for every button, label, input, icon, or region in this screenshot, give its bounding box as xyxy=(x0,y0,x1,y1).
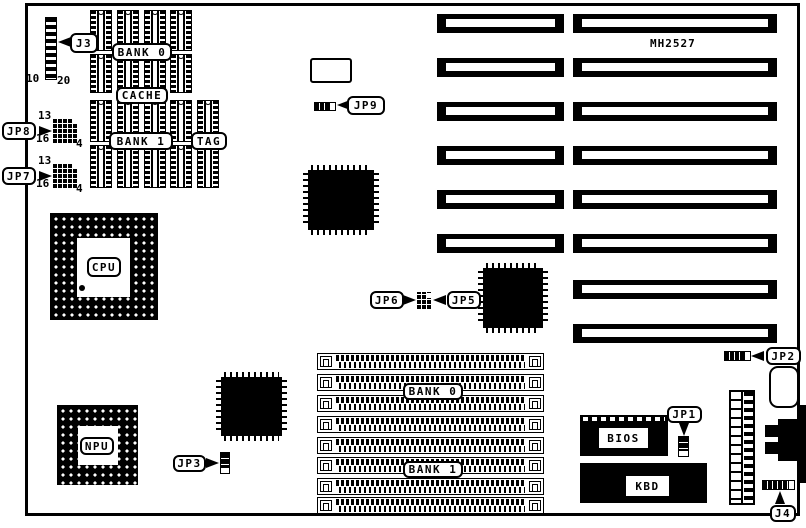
dip-pins-right xyxy=(213,146,218,187)
dip-pins-left xyxy=(198,146,203,187)
simm-clip-right xyxy=(529,419,541,430)
isa-slot-left-6 xyxy=(437,234,564,253)
motherboard-diagram: MH2527 BIOSKBDJ3BANK 0CACHEBANK 1TAGJP8J… xyxy=(0,0,806,528)
power-connector xyxy=(729,390,755,505)
simm-clip-right xyxy=(529,500,541,511)
text-jp8-pin-16: 16 xyxy=(36,133,49,144)
simm-pins-bottom xyxy=(336,506,525,512)
qfp-leads-bottom xyxy=(311,230,371,235)
text-jp7-pin-4: 4 xyxy=(76,183,83,194)
dip-pins-left xyxy=(91,55,96,92)
dip-memory-chip xyxy=(170,100,192,142)
callout-tail-jp6 xyxy=(403,295,416,305)
callout-bank1-cache: BANK 1 xyxy=(109,132,173,150)
dip-body xyxy=(97,146,105,187)
isa-slot-left-4 xyxy=(437,146,564,165)
callout-tag: TAG xyxy=(191,132,227,150)
cpu-pin1-dot xyxy=(79,285,85,291)
keyboard-connector-tab xyxy=(765,442,779,454)
bios-socket-dashes xyxy=(583,417,665,421)
dip-pins-right xyxy=(186,101,191,141)
simm-socket-1 xyxy=(317,353,544,370)
dip-body xyxy=(97,11,105,50)
isa-slot-window xyxy=(582,195,768,203)
simm-pins-bottom xyxy=(336,446,525,452)
edge-connector-stub xyxy=(799,458,806,483)
jp8-open-pin xyxy=(72,119,77,124)
dip-body xyxy=(177,55,185,92)
dip-memory-chip xyxy=(144,145,166,188)
isa-slot-right-1 xyxy=(573,14,777,33)
callout-bank0-cache: BANK 0 xyxy=(112,43,172,61)
qfp-leads-right xyxy=(543,271,548,325)
jp1-jumper-strip xyxy=(678,436,689,457)
dip-pins-left xyxy=(145,146,150,187)
callout-jp1: JP1 xyxy=(667,406,702,423)
callout-jp7: JP7 xyxy=(2,167,36,185)
dip-memory-chip xyxy=(90,145,112,188)
dip-pins-left xyxy=(171,146,176,187)
jp3-jumper-strip xyxy=(220,452,230,474)
jp2-open-pin xyxy=(744,352,750,360)
dip-pins-left xyxy=(91,101,96,141)
text-j3-pin-10: 10 xyxy=(26,73,39,84)
board-title: MH2527 xyxy=(650,38,696,49)
simm-clip-left xyxy=(320,440,332,451)
isa-slot-window xyxy=(582,329,768,337)
dip-body xyxy=(124,146,132,187)
qfp-leads-right xyxy=(374,173,379,227)
dip-body xyxy=(204,146,212,187)
isa-slot-window xyxy=(582,19,768,27)
dip-pins-left xyxy=(171,11,176,50)
j4-open-pin xyxy=(788,481,794,489)
callout-jp9: JP9 xyxy=(347,96,385,115)
edge-connector-stub xyxy=(799,405,806,420)
simm-pins-bottom xyxy=(336,487,525,493)
simm-clip-right xyxy=(529,460,541,471)
callout-cache: CACHE xyxy=(116,87,168,104)
callout-tail-j4 xyxy=(775,491,785,504)
isa-slot-left-3 xyxy=(437,102,564,121)
dip-pins-right xyxy=(186,146,191,187)
isa-slot-right-2 xyxy=(573,58,777,77)
callout-tail-jp1 xyxy=(679,423,689,436)
qfp-leads-right xyxy=(282,380,287,433)
qfp-leads-bottom xyxy=(486,328,540,333)
isa-slot-left-2 xyxy=(437,58,564,77)
text-j3-pin-20: 20 xyxy=(57,75,70,86)
simm-socket-7 xyxy=(317,478,544,495)
isa-slot-right-6 xyxy=(573,234,777,253)
isa-slot-window xyxy=(446,239,555,247)
simm-pins-top xyxy=(336,499,525,505)
simm-pins-top xyxy=(336,480,525,486)
simm-pins-bottom xyxy=(336,362,525,368)
isa-slot-right-4 xyxy=(573,146,777,165)
isa-slot-window xyxy=(446,63,555,71)
isa-slot-window xyxy=(446,19,555,27)
simm-socket-4 xyxy=(317,416,544,433)
dip-pins-right xyxy=(160,146,165,187)
j3-pin-header xyxy=(45,17,57,80)
jp2-jumper-strip xyxy=(724,351,751,361)
callout-j4: J4 xyxy=(770,505,796,522)
isa-slot-window xyxy=(582,63,768,71)
isa-slot-window xyxy=(446,195,555,203)
simm-clip-right xyxy=(529,481,541,492)
chip-label-kbd: KBD xyxy=(626,476,669,496)
qfp-chipset-3 xyxy=(478,263,548,333)
jp1-open-pin xyxy=(679,450,688,456)
dip-pins-left xyxy=(118,146,123,187)
dip-memory-chip xyxy=(170,10,192,51)
power-connector-cells xyxy=(731,392,743,503)
text-jp8-pin-4: 4 xyxy=(76,138,83,149)
jp5-jp6-jumper-block xyxy=(417,292,432,309)
isa-slot-right-7 xyxy=(573,280,777,299)
dip-pins-right xyxy=(133,146,138,187)
simm-pins-top xyxy=(336,439,525,445)
callout-cpu: CPU xyxy=(87,257,121,277)
simm-clip-right xyxy=(529,398,541,409)
isa-slot-left-5 xyxy=(437,190,564,209)
simm-socket-8 xyxy=(317,497,544,514)
dip-pins-right xyxy=(186,55,191,92)
jp3-open-pin xyxy=(221,467,229,473)
jp5-jp6-open-pin xyxy=(426,293,431,298)
jp9-open-pin xyxy=(329,103,335,110)
dip-body xyxy=(177,101,185,141)
dip-body xyxy=(177,146,185,187)
jp8-jumper-block xyxy=(53,118,78,143)
isa-slot-right-3 xyxy=(573,102,777,121)
callout-npu: NPU xyxy=(80,437,114,455)
keyboard-connector xyxy=(778,419,806,461)
callout-jp5: JP5 xyxy=(447,291,481,309)
text-jp8-pin-13: 13 xyxy=(38,110,51,121)
dip-pins-right xyxy=(106,55,111,92)
dip-memory-chip xyxy=(170,54,192,93)
isa-slot-left-1 xyxy=(437,14,564,33)
isa-slot-window xyxy=(446,151,555,159)
simm-pins-bottom xyxy=(336,425,525,431)
isa-slot-window xyxy=(582,107,768,115)
simm-pins-bottom xyxy=(336,404,525,410)
callout-jp8: JP8 xyxy=(2,122,36,140)
chip-label-bios: BIOS xyxy=(599,428,648,448)
dip-body xyxy=(97,55,105,92)
dip-memory-chip xyxy=(197,145,219,188)
simm-clip-left xyxy=(320,500,332,511)
power-connector-pins xyxy=(744,392,753,503)
dip-pins-right xyxy=(106,11,111,50)
keyboard-connector-tab xyxy=(765,425,779,437)
simm-clip-right xyxy=(529,356,541,367)
simm-clip-left xyxy=(320,419,332,430)
simm-clip-left xyxy=(320,377,332,388)
simm-pins-top xyxy=(336,355,525,361)
battery xyxy=(769,366,799,408)
isa-slot-window xyxy=(582,239,768,247)
dip-memory-chip xyxy=(117,145,139,188)
text-jp7-pin-16: 16 xyxy=(36,178,49,189)
dip-body xyxy=(97,101,105,141)
callout-tail-jp3 xyxy=(206,458,219,468)
dip-pins-left xyxy=(91,146,96,187)
simm-clip-right xyxy=(529,440,541,451)
isa-slot-window xyxy=(582,151,768,159)
callout-jp2: JP2 xyxy=(766,347,801,365)
simm-pins-top xyxy=(336,376,525,382)
callout-jp6: JP6 xyxy=(370,291,404,309)
qfp-body xyxy=(308,170,374,230)
simm-pins-top xyxy=(336,418,525,424)
simm-clip-left xyxy=(320,398,332,409)
callout-tail-jp5 xyxy=(433,295,446,305)
jp7-open-pin xyxy=(72,164,77,169)
text-jp7-pin-13: 13 xyxy=(38,155,51,166)
qfp-body xyxy=(483,268,543,328)
callout-j3: J3 xyxy=(70,33,98,53)
isa-slot-right-8 xyxy=(573,324,777,343)
simm-clip-left xyxy=(320,356,332,367)
qfp-chipset-1 xyxy=(303,165,379,235)
qfp-body xyxy=(221,377,282,436)
isa-slot-window xyxy=(446,107,555,115)
simm-clip-left xyxy=(320,481,332,492)
simm-clip-right xyxy=(529,377,541,388)
isa-slot-right-5 xyxy=(573,190,777,209)
qfp-leads-bottom xyxy=(224,436,279,441)
simm-socket-5 xyxy=(317,437,544,454)
simm-clip-left xyxy=(320,460,332,471)
dip-memory-chip xyxy=(170,145,192,188)
jp9-jumper-strip xyxy=(314,102,336,111)
jp7-jumper-block xyxy=(53,163,78,188)
dip-pins-right xyxy=(186,11,191,50)
dip-body xyxy=(177,11,185,50)
callout-jp3: JP3 xyxy=(173,455,206,472)
callout-bank0-simm: BANK 0 xyxy=(403,383,463,400)
crystal-oscillator xyxy=(310,58,352,83)
dip-pins-right xyxy=(106,146,111,187)
callout-tail-jp2 xyxy=(751,351,764,361)
j4-jumper-strip xyxy=(762,480,795,490)
dip-body xyxy=(151,146,159,187)
dip-memory-chip xyxy=(90,54,112,93)
dip-pins-left xyxy=(171,55,176,92)
qfp-chipset-2 xyxy=(216,372,287,441)
callout-bank1-simm: BANK 1 xyxy=(403,461,463,478)
isa-slot-window xyxy=(582,285,768,293)
